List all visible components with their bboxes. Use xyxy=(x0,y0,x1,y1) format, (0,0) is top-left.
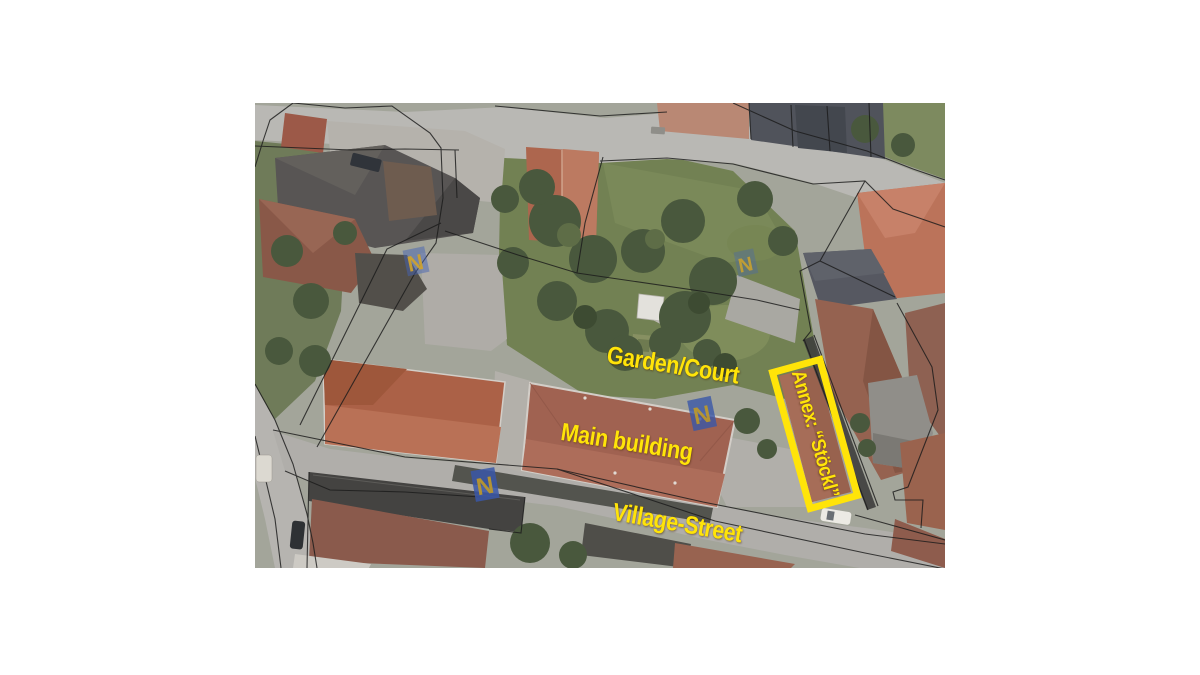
screenshot-canvas: N N N N Garden/Court Main building Villa… xyxy=(0,0,1200,675)
aerial-photo: N N N N Garden/Court Main building Villa… xyxy=(255,103,945,568)
van-white-left-road xyxy=(256,455,272,482)
car-gray-top-road xyxy=(651,127,665,135)
